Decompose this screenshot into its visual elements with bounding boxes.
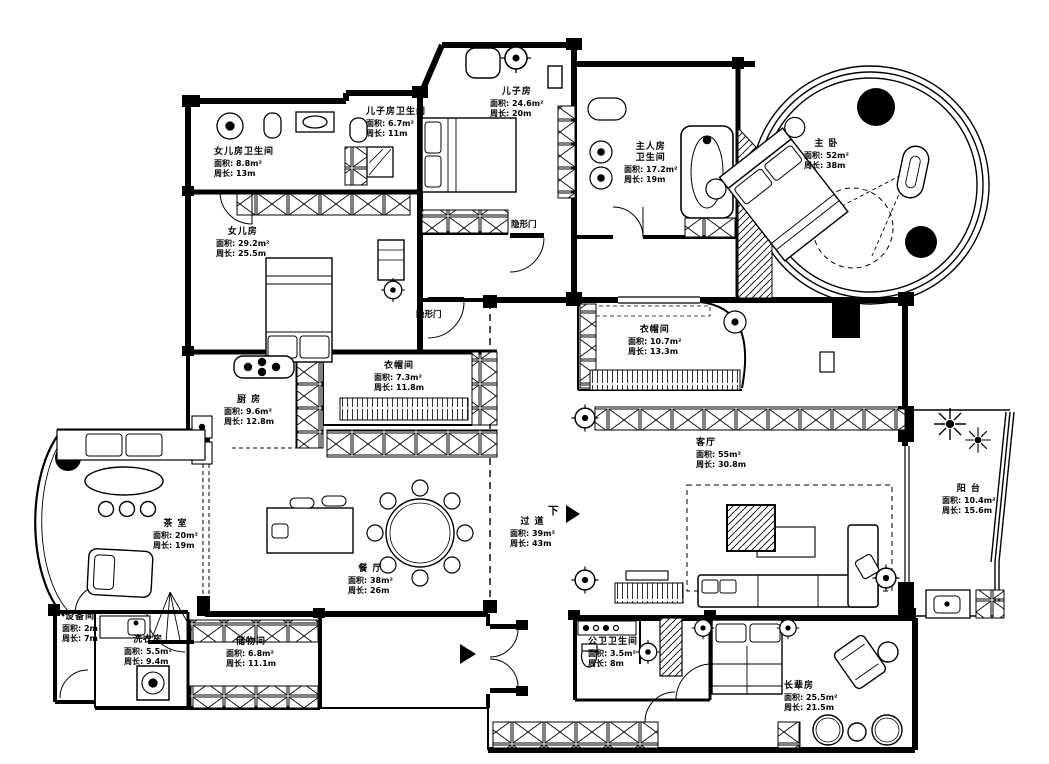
room-name: 茶 室 bbox=[153, 519, 198, 531]
room-label-cloak-left: 衣帽间 面积: 7.3m² 周长: 11.8m bbox=[374, 361, 424, 393]
room-perimeter: 周长: 11m bbox=[366, 129, 426, 139]
down-marker-label: 下 bbox=[548, 503, 559, 518]
room-name: 衣帽间 bbox=[374, 361, 424, 373]
room-area: 面积: 5.5m² bbox=[124, 647, 172, 657]
room-perimeter: 周长: 12.8m bbox=[224, 417, 274, 427]
room-name: 儿子房卫生间 bbox=[366, 107, 426, 119]
room-perimeter: 周长: 13m bbox=[214, 169, 274, 179]
room-name: 主人房卫生间 bbox=[633, 142, 669, 165]
room-area: 面积: 2m bbox=[62, 624, 98, 634]
room-area: 面积: 25.5m² bbox=[784, 693, 838, 703]
room-area: 面积: 7.3m² bbox=[374, 373, 424, 383]
room-area: 面积: 10.4m² bbox=[942, 496, 996, 506]
room-area: 面积: 20m² bbox=[153, 531, 198, 541]
daughter-room-furniture bbox=[266, 240, 404, 362]
room-perimeter: 周长: 11.8m bbox=[374, 383, 424, 393]
room-label-balcony: 阳 台 面积: 10.4m² 周长: 15.6m bbox=[942, 484, 996, 516]
room-label-kitchen: 厨 房 面积: 9.6m² 周长: 12.8m bbox=[224, 395, 274, 427]
room-perimeter: 周长: 25.5m bbox=[216, 249, 270, 259]
room-name: 女儿房 bbox=[216, 227, 270, 239]
room-label-tea-room: 茶 室 面积: 20m² 周长: 19m bbox=[153, 519, 198, 551]
room-perimeter: 周长: 11.1m bbox=[226, 659, 276, 669]
room-name: 阳 台 bbox=[942, 484, 996, 496]
room-area: 面积: 6.8m² bbox=[226, 649, 276, 659]
room-area: 面积: 55m² bbox=[696, 450, 746, 460]
room-name: 女儿房卫生间 bbox=[214, 147, 274, 159]
room-area: 面积: 29.2m² bbox=[216, 239, 270, 249]
room-perimeter: 周长: 13.3m bbox=[628, 347, 682, 357]
floor-plan: 女儿房卫生间 面积: 8.8m² 周长: 13m 儿子房卫生间 面积: 6.7m… bbox=[0, 0, 1049, 764]
room-perimeter: 周长: 19m bbox=[624, 175, 678, 185]
room-perimeter: 周长: 9.4m bbox=[124, 657, 172, 667]
room-area: 面积: 52m² bbox=[804, 151, 849, 161]
room-name: 设备间 bbox=[62, 612, 98, 624]
room-name: 公卫卫生间 bbox=[588, 637, 638, 649]
room-label-living-room: 客厅 面积: 55m² 周长: 30.8m bbox=[696, 438, 746, 470]
room-name: 客厅 bbox=[696, 438, 746, 450]
room-name: 主 卧 bbox=[804, 139, 849, 151]
room-label-master-bedroom: 主 卧 面积: 52m² 周长: 38m bbox=[804, 139, 849, 171]
hidden-door-label-2: 隐形门 bbox=[416, 308, 442, 320]
room-area: 面积: 10.7m² bbox=[628, 337, 682, 347]
room-area: 面积: 17.2m² bbox=[624, 165, 678, 175]
room-perimeter: 周长: 7m bbox=[62, 634, 98, 644]
room-area: 面积: 3.5m² bbox=[588, 649, 638, 659]
closet-rail-rows bbox=[340, 370, 740, 603]
room-area: 面积: 38m² bbox=[348, 576, 393, 586]
room-area: 面积: 9.6m² bbox=[224, 407, 274, 417]
cloak-right-mirror bbox=[724, 311, 834, 372]
room-label-master-bath: 主人房卫生间 面积: 17.2m² 周长: 19m bbox=[624, 142, 678, 185]
room-label-cloak-right: 衣帽间 面积: 10.7m² 周长: 13.3m bbox=[628, 325, 682, 357]
daughter-bath-fixtures bbox=[217, 112, 334, 139]
room-area: 面积: 6.7m² bbox=[366, 119, 426, 129]
room-area: 面积: 39m² bbox=[510, 529, 555, 539]
room-perimeter: 周长: 15.6m bbox=[942, 506, 996, 516]
room-name: 衣帽间 bbox=[628, 325, 682, 337]
room-label-laundry-room: 洗衣房 面积: 5.5m² 周长: 9.4m bbox=[124, 635, 172, 667]
room-name: 儿子房 bbox=[490, 87, 544, 99]
room-label-equipment-room: 设备间 面积: 2m 周长: 7m bbox=[62, 612, 98, 644]
room-label-son-room: 儿子房 面积: 24.6m² 周长: 20m bbox=[490, 87, 544, 119]
room-label-storage-room: 储物间 面积: 6.8m² 周长: 11.1m bbox=[226, 637, 276, 669]
room-perimeter: 周长: 20m bbox=[490, 109, 544, 119]
room-area: 面积: 8.8m² bbox=[214, 159, 274, 169]
room-perimeter: 周长: 26m bbox=[348, 586, 393, 596]
room-label-elders-room: 长辈房 面积: 25.5m² 周长: 21.5m bbox=[784, 681, 838, 713]
room-perimeter: 周长: 38m bbox=[804, 161, 849, 171]
room-name: 洗衣房 bbox=[124, 635, 172, 647]
room-label-public-bath: 公卫卫生间 面积: 3.5m² 周长: 8m bbox=[588, 637, 638, 669]
room-label-son-bath: 儿子房卫生间 面积: 6.7m² 周长: 11m bbox=[366, 107, 426, 139]
room-area: 面积: 24.6m² bbox=[490, 99, 544, 109]
room-perimeter: 周长: 8m bbox=[588, 659, 638, 669]
entry-arrow-icon bbox=[460, 644, 476, 664]
room-perimeter: 周长: 21.5m bbox=[784, 703, 838, 713]
room-label-dining-room: 餐 厅 面积: 38m² 周长: 26m bbox=[348, 564, 393, 596]
down-arrow-icon bbox=[566, 505, 580, 523]
room-name: 长辈房 bbox=[784, 681, 838, 693]
room-name: 餐 厅 bbox=[348, 564, 393, 576]
room-perimeter: 周长: 30.8m bbox=[696, 460, 746, 470]
son-room-furniture bbox=[422, 48, 562, 192]
room-label-daughter-bath: 女儿房卫生间 面积: 8.8m² 周长: 13m bbox=[214, 147, 274, 179]
room-label-corridor: 过 道 面积: 39m² 周长: 43m bbox=[510, 517, 555, 549]
hidden-door-label-1: 隐形门 bbox=[511, 218, 537, 230]
room-label-daughter-room: 女儿房 面积: 29.2m² 周长: 25.5m bbox=[216, 227, 270, 259]
room-name: 储物间 bbox=[226, 637, 276, 649]
room-perimeter: 周长: 43m bbox=[510, 539, 555, 549]
room-name: 厨 房 bbox=[224, 395, 274, 407]
room-name: 过 道 bbox=[510, 517, 555, 529]
room-perimeter: 周长: 19m bbox=[153, 541, 198, 551]
